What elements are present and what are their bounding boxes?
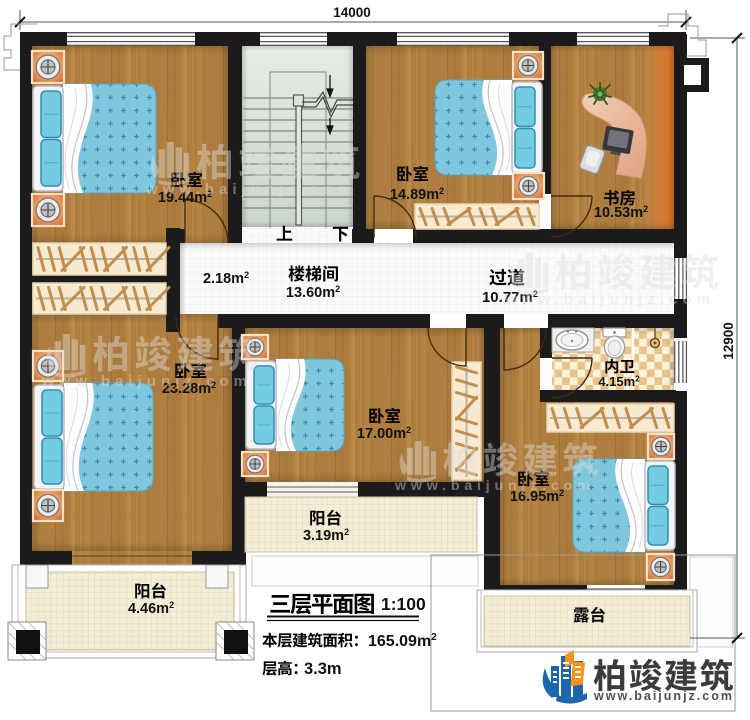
svg-text:3.19m2: 3.19m2: [303, 527, 349, 544]
svg-text:4.15m2: 4.15m2: [598, 374, 640, 389]
svg-text:4.46m2: 4.46m2: [128, 600, 174, 617]
svg-text:17.00m2: 17.00m2: [357, 425, 411, 442]
svg-text:13.60m2: 13.60m2: [286, 284, 340, 301]
svg-text:165.09m2: 165.09m2: [368, 632, 437, 650]
svg-text:14000: 14000: [333, 5, 371, 20]
svg-text:14.89m2: 14.89m2: [390, 186, 444, 203]
svg-text:1:100: 1:100: [381, 594, 426, 614]
svg-text:3.3m: 3.3m: [304, 660, 342, 678]
svg-text:12900: 12900: [721, 322, 736, 360]
svg-text:10.53m2: 10.53m2: [594, 204, 648, 221]
svg-text:2.18m2: 2.18m2: [203, 270, 249, 287]
